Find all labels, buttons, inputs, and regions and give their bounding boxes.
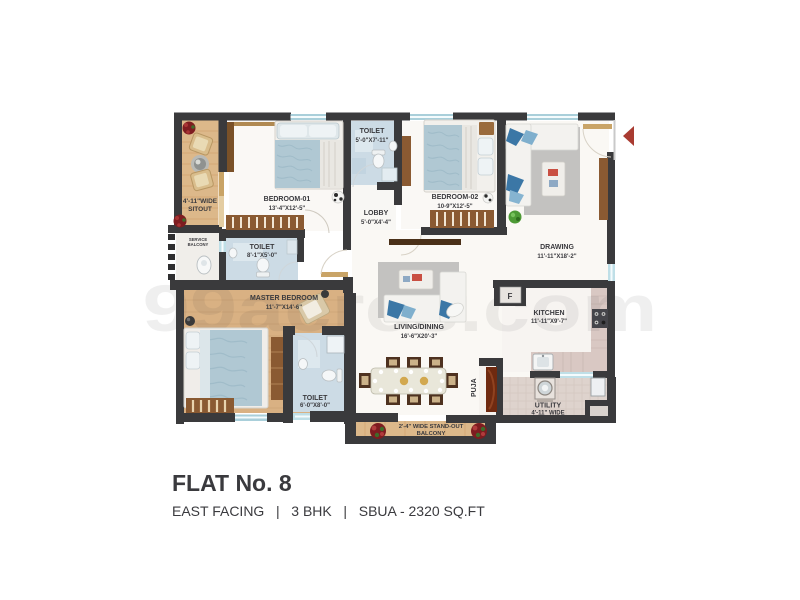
svg-text:F: F [508,292,513,301]
svg-text:5'-0"X7'-11": 5'-0"X7'-11" [356,138,389,144]
svg-text:13'-4"X12'-5": 13'-4"X12'-5" [269,206,306,212]
svg-text:5'-0"X4'-4": 5'-0"X4'-4" [361,220,391,226]
svg-text:LOBBY: LOBBY [364,210,389,217]
svg-text:TOILET: TOILET [303,395,328,402]
svg-text:LIVING/DINING: LIVING/DINING [394,324,444,331]
svg-text:16'-6"X20'-3": 16'-6"X20'-3" [401,334,438,340]
svg-text:FLAT No. 8: FLAT No. 8 [172,470,292,496]
svg-text:SITOUT: SITOUT [188,206,212,213]
svg-text:TOILET: TOILET [250,244,275,251]
svg-text:PUJA: PUJA [471,378,478,397]
svg-text:UTILITY: UTILITY [535,403,562,410]
svg-text:11'-11"X18'-2": 11'-11"X18'-2" [537,254,576,260]
svg-text:4'-11"WIDE: 4'-11"WIDE [183,198,218,205]
svg-text:KITCHEN: KITCHEN [533,310,564,317]
svg-text:BEDROOM-02: BEDROOM-02 [432,194,479,201]
svg-text:6'-0"X8'-0": 6'-0"X8'-0" [300,403,330,409]
svg-text:2'-4" WIDE STAND-OUT: 2'-4" WIDE STAND-OUT [399,424,464,430]
svg-text:11'-11"X9'-7": 11'-11"X9'-7" [531,319,567,325]
svg-text:8'-1"X5'-0": 8'-1"X5'-0" [247,253,277,259]
svg-text:BEDROOM-01: BEDROOM-01 [264,196,311,203]
svg-text:DRAWING: DRAWING [540,244,574,251]
svg-text:MASTER BEDROOM: MASTER BEDROOM [250,295,318,302]
svg-text:EAST FACING | 3 BHK |: EAST FACING | 3 BHK | SBUA - 2320 SQ.FT [172,503,485,519]
svg-text:BALCONY: BALCONY [188,242,209,247]
svg-text:TOILET: TOILET [360,128,385,135]
svg-text:10-9"X12'-5": 10-9"X12'-5" [437,204,472,210]
svg-text:4'-11" WIDE: 4'-11" WIDE [531,411,564,417]
svg-text:11'-7"X14'-6": 11'-7"X14'-6" [266,305,302,311]
svg-text:BALCONY: BALCONY [417,431,446,437]
